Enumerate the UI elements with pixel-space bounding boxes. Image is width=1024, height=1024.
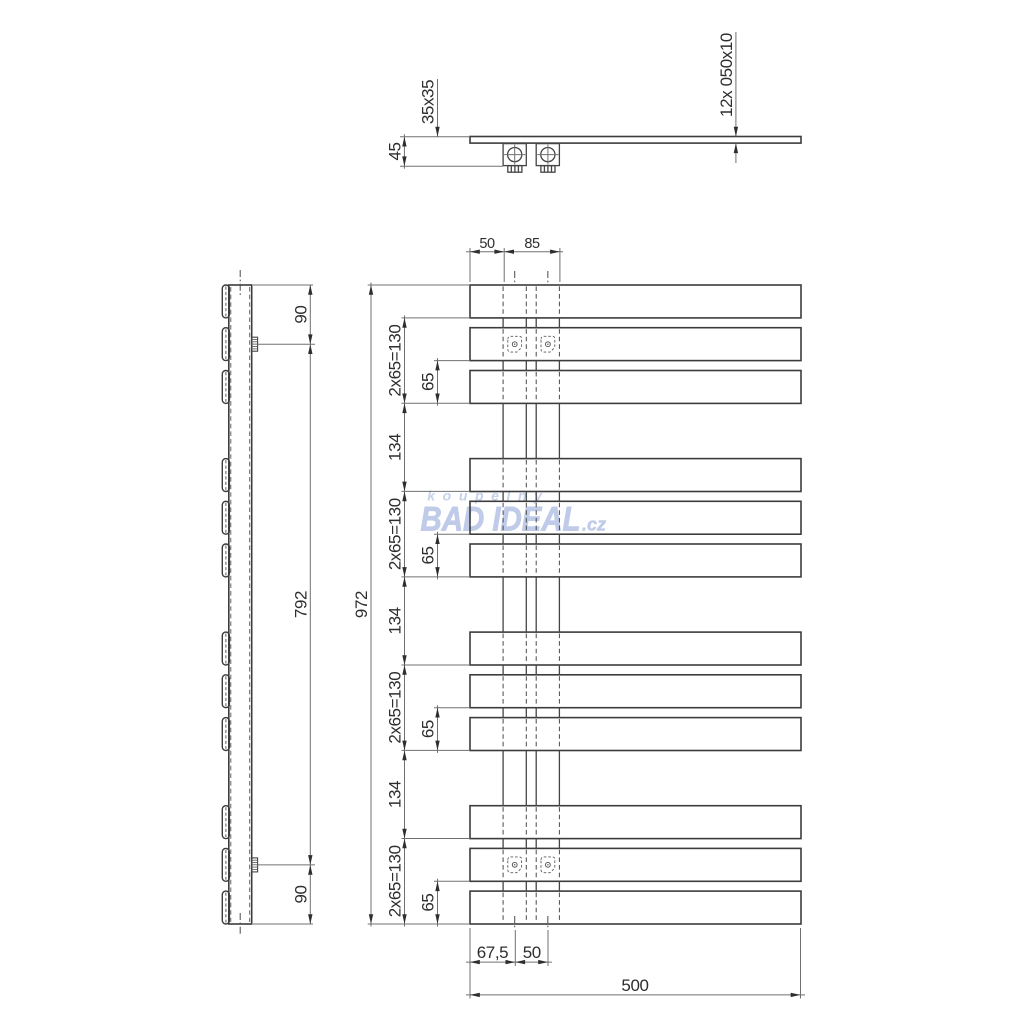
svg-text:35x35: 35x35	[419, 80, 438, 124]
svg-text:45: 45	[385, 142, 404, 160]
svg-text:65: 65	[419, 894, 438, 912]
svg-text:134: 134	[386, 607, 405, 634]
svg-text:972: 972	[352, 591, 371, 618]
svg-text:65: 65	[419, 373, 438, 391]
svg-text:2x65=130: 2x65=130	[386, 325, 405, 397]
svg-text:2x65=130: 2x65=130	[386, 498, 405, 570]
svg-text:134: 134	[386, 781, 405, 808]
svg-text:90: 90	[291, 306, 310, 324]
svg-text:85: 85	[524, 236, 540, 252]
svg-text:792: 792	[291, 591, 310, 618]
svg-text:65: 65	[419, 546, 438, 564]
svg-text:50: 50	[479, 236, 495, 252]
svg-text:12x 050x10: 12x 050x10	[717, 33, 736, 117]
svg-text:50: 50	[523, 943, 541, 962]
svg-text:.cz: .cz	[582, 515, 606, 535]
svg-text:134: 134	[386, 434, 405, 461]
svg-text:65: 65	[419, 720, 438, 738]
svg-text:2x65=130: 2x65=130	[386, 672, 405, 744]
svg-text:90: 90	[291, 885, 310, 903]
svg-text:500: 500	[621, 976, 648, 995]
svg-text:BAD IDEAL: BAD IDEAL	[421, 501, 581, 539]
svg-text:67,5: 67,5	[477, 943, 509, 962]
svg-text:2x65=130: 2x65=130	[386, 845, 405, 917]
